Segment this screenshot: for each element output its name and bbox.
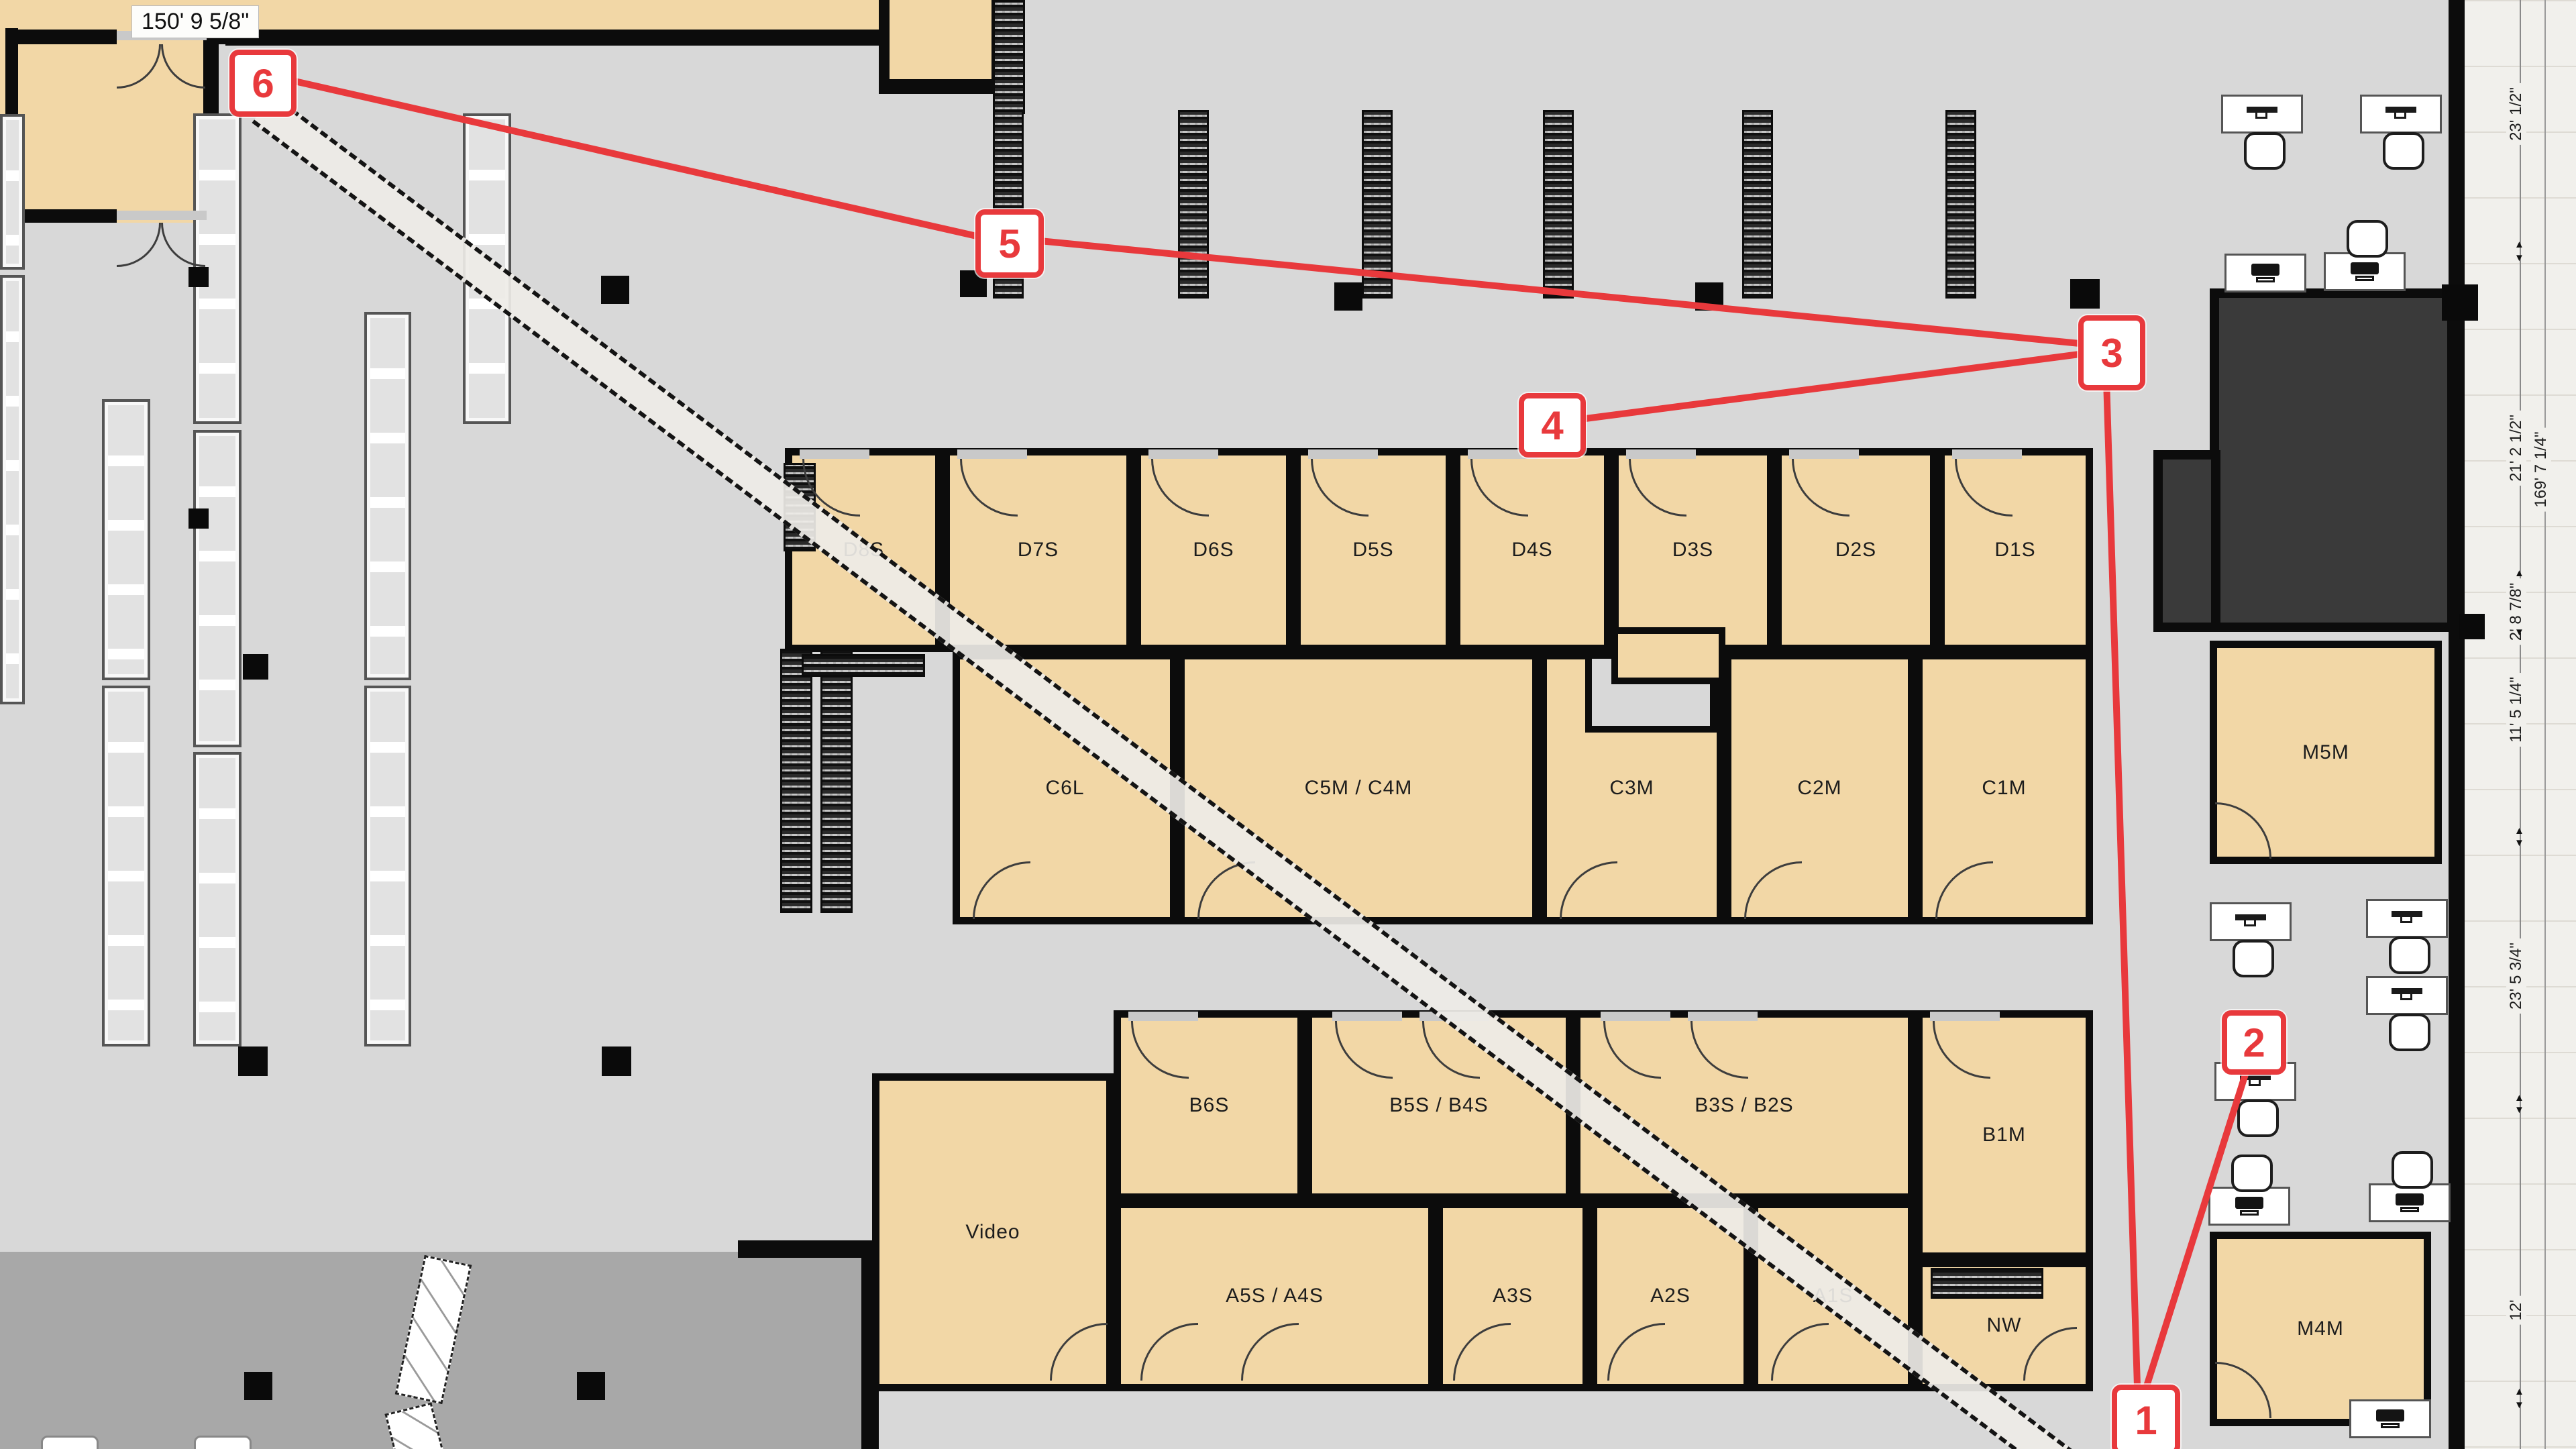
marker-4: 4 (1519, 393, 1586, 458)
marker-1: 1 (2112, 1385, 2180, 1449)
marker-line (1033, 240, 2080, 343)
top-dimension-label: 150' 9 5/8" (131, 5, 259, 38)
marker-line (286, 79, 977, 236)
marker-6: 6 (229, 50, 297, 117)
marker-line (2106, 380, 2137, 1386)
marker-2: 2 (2222, 1010, 2286, 1075)
marker-line (2147, 1064, 2249, 1386)
floor-plan: D8SD7SD6SD5SD4SD3SD2SD1SC6LC5M / C4MC3MC… (0, 0, 2576, 1449)
marker-lines (0, 0, 2576, 1449)
marker-3: 3 (2078, 315, 2145, 390)
marker-5: 5 (975, 209, 1044, 278)
marker-line (1575, 354, 2080, 420)
